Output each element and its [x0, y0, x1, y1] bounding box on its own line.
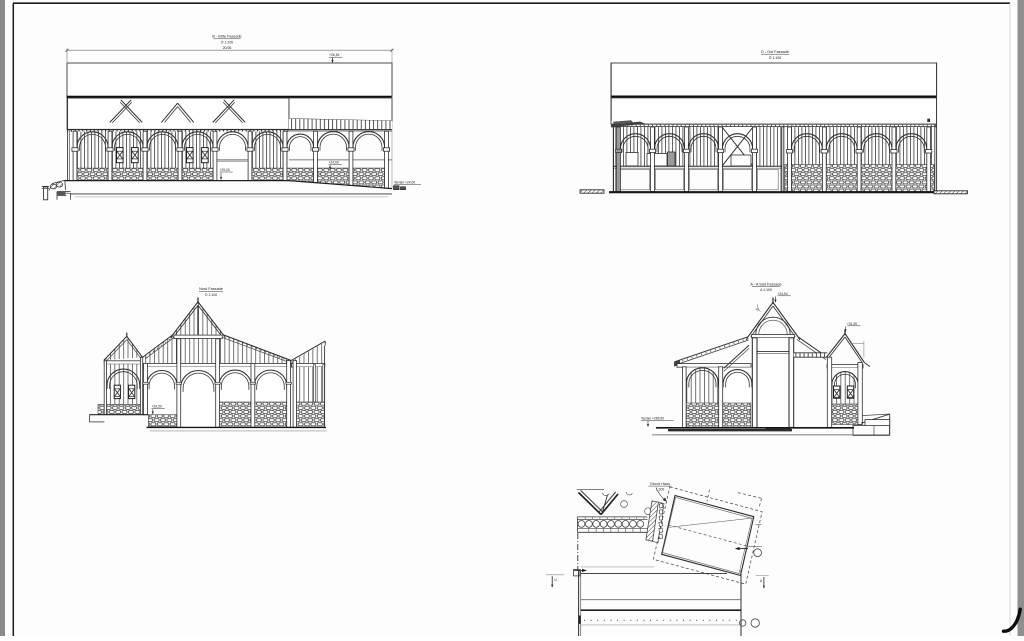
svg-text:+24,00: +24,00 [329, 161, 339, 165]
svg-text:Grund Haus: Grund Haus [650, 482, 670, 486]
svg-text:20/26: 20/26 [223, 46, 232, 50]
svg-text:A - A Süd Fassade: A - A Süd Fassade [750, 282, 781, 286]
svg-text:+26,50: +26,50 [152, 405, 162, 409]
svg-text:Nord Fassade: Nord Fassade [199, 287, 223, 291]
svg-text:+26,54: +26,54 [329, 53, 340, 57]
svg-text:Ö 1:100: Ö 1:100 [221, 40, 234, 44]
svg-text:D - Ost Fassade: D - Ost Fassade [761, 50, 789, 54]
svg-text:Ö 1:100: Ö 1:100 [205, 293, 218, 297]
svg-text:A 1:100: A 1:100 [760, 288, 772, 292]
svg-text:+24,54: +24,54 [778, 292, 788, 296]
svg-text:+25,00: +25,00 [220, 168, 230, 172]
svg-text:Terrain +285,50: Terrain +285,50 [641, 416, 664, 420]
svg-text:45: 45 [756, 308, 760, 312]
svg-text:Terrain +24,00: Terrain +24,00 [394, 181, 415, 185]
svg-text:Ö 1:100: Ö 1:100 [769, 56, 782, 60]
svg-text:B - Büfe Fassade: B - Büfe Fassade [212, 35, 241, 39]
svg-text:+31,50: +31,50 [847, 322, 857, 326]
